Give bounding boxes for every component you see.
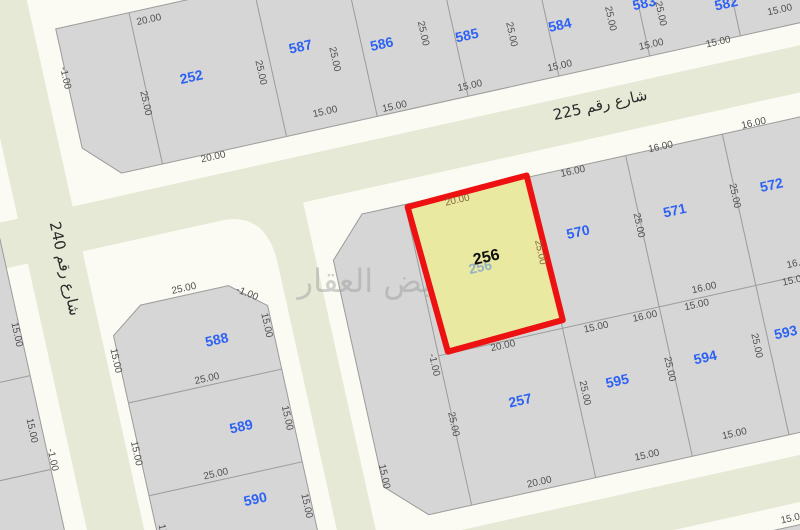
map-canvas[interactable]: -1.0020.0025.0020.0025.0015.0025.0015.00… bbox=[0, 0, 800, 530]
